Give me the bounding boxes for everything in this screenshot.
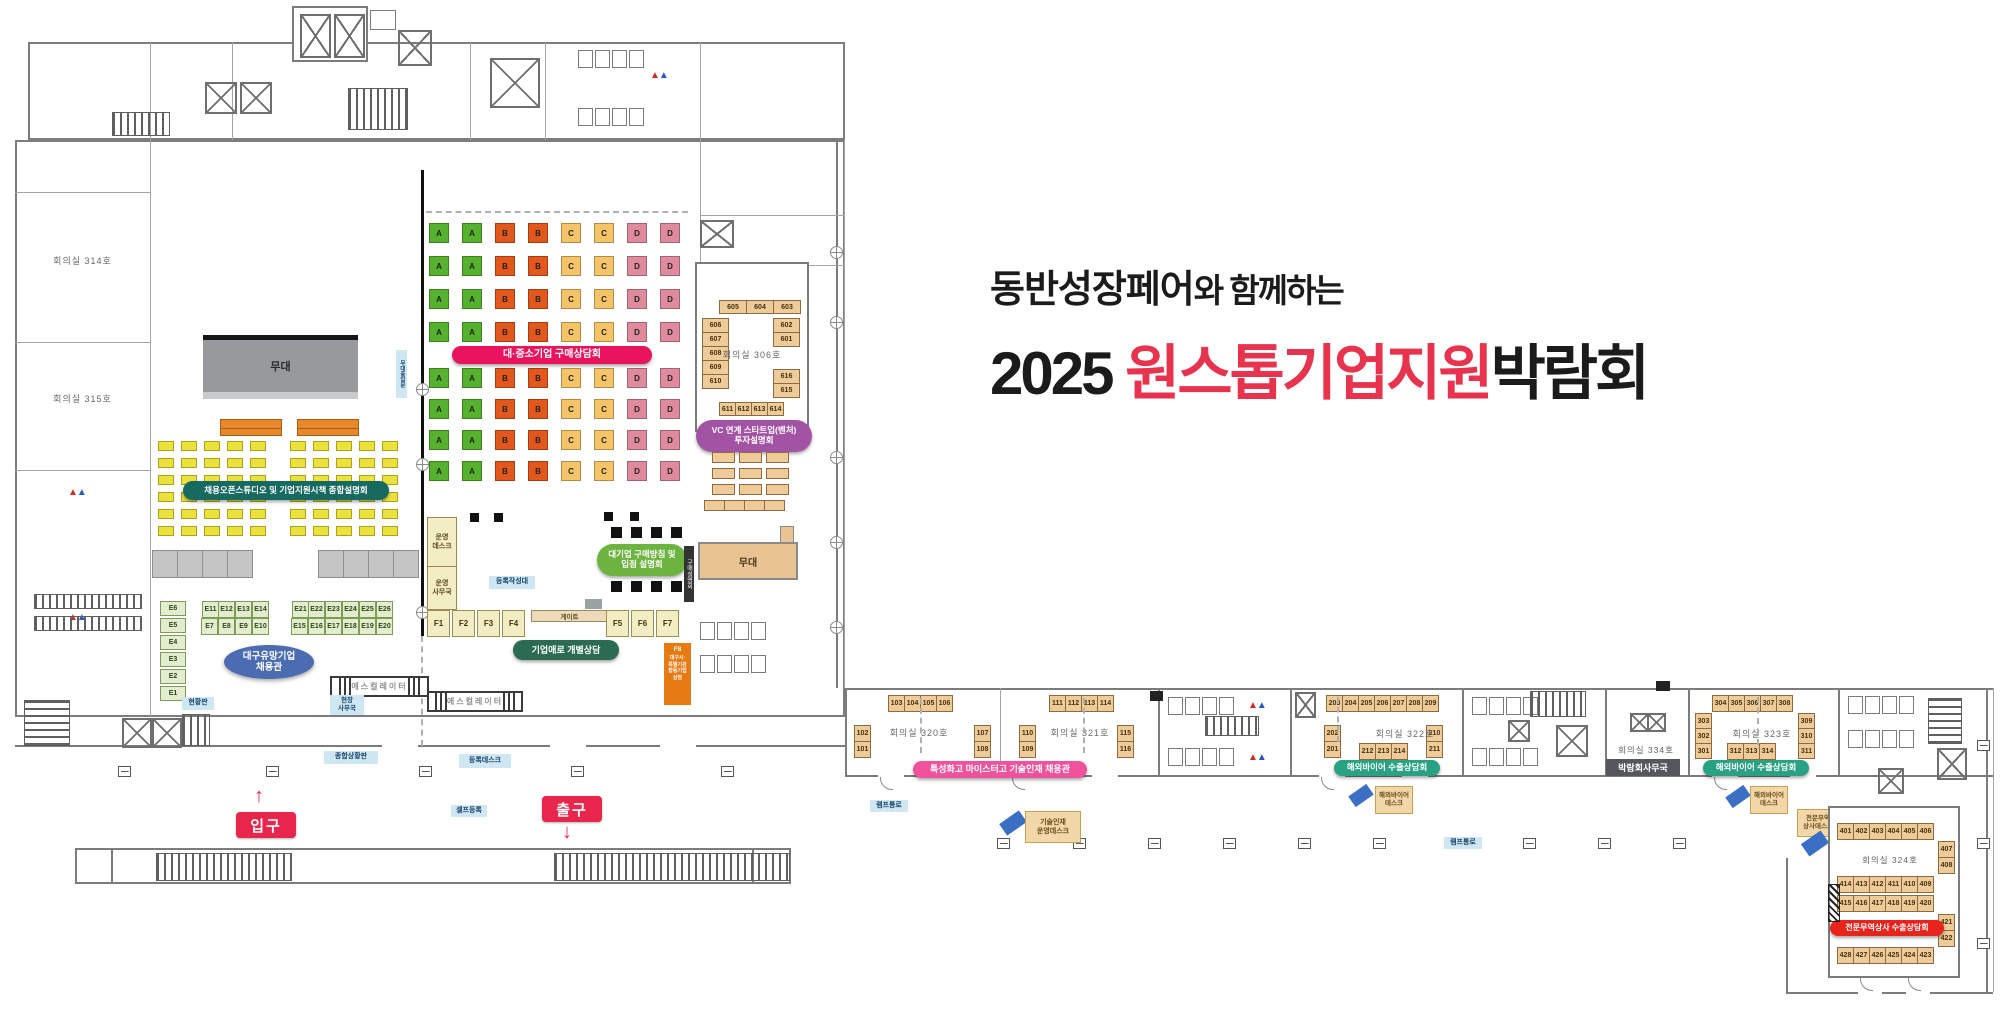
consult-booth-grid-bottom: AABBCCDDAABBCCDDAABBCCDDAABBCCDD <box>429 368 680 481</box>
toilet-fixtures <box>34 594 142 609</box>
elevator-icon <box>1878 768 1904 794</box>
table <box>766 452 789 463</box>
audience-seat <box>359 458 375 468</box>
toilet-stall <box>1882 696 1897 714</box>
chair <box>631 527 642 538</box>
security-box <box>585 599 602 609</box>
toilet-stall <box>578 50 593 68</box>
table <box>712 468 735 479</box>
table <box>712 452 735 463</box>
booth-A: A <box>429 256 449 276</box>
ops-office-label: 운영 사무국 <box>427 566 457 610</box>
wall <box>545 42 546 140</box>
booth-shell <box>202 550 228 578</box>
wall <box>700 42 701 140</box>
booth: 106 <box>936 695 953 712</box>
escalator: 에스컬레이터 <box>330 676 429 697</box>
toilet-stall <box>612 50 627 68</box>
toilet-stall <box>1865 696 1880 714</box>
biz-consult-pill: 기업애로 개별상담 <box>513 640 619 660</box>
booth-A: A <box>429 223 449 243</box>
booth: 416 <box>1853 895 1870 912</box>
toilet-stall <box>612 108 627 126</box>
room-321-label: 회의실 321호 <box>1025 726 1135 738</box>
wall <box>150 140 151 717</box>
booth: 604 <box>746 300 774 314</box>
room-divider-dashed <box>1083 698 1085 753</box>
wall <box>1786 858 1788 992</box>
booth-A: A <box>429 289 449 309</box>
toilet-stall <box>1168 748 1183 766</box>
booth: 408 <box>1938 857 1955 874</box>
booth: 606 <box>702 318 729 333</box>
booth-D: D <box>627 430 647 450</box>
audience-seat <box>382 526 398 536</box>
booth-shell <box>177 550 203 578</box>
door-gap <box>382 743 418 749</box>
wall <box>845 688 847 775</box>
booth: 205 <box>1358 695 1375 712</box>
ramp-passage-label: 램프통로 <box>870 800 908 812</box>
f-booths-left: F1F2F3F4 <box>427 610 525 637</box>
toilet-stall <box>1185 697 1200 715</box>
booth-D: D <box>660 322 680 342</box>
chair-row <box>611 581 682 592</box>
booth: F1 <box>427 610 450 637</box>
booth: E22 <box>308 601 325 618</box>
booth: E25 <box>359 601 376 618</box>
booth: E7 <box>201 618 218 635</box>
booth: 311 <box>1798 743 1815 759</box>
self-registration-label: 셀프등록 <box>451 805 487 817</box>
booth-B: B <box>495 368 515 388</box>
desk-icon <box>1348 784 1373 807</box>
booth-C: C <box>594 322 614 342</box>
e-booth-block1: E11E12E13E14E7E8E9E10 <box>202 601 270 635</box>
hall-partition-wall <box>421 170 424 636</box>
toilet-stall <box>578 108 593 126</box>
ops-desk-column: 운영 데스크 운영 사무국 <box>427 517 457 610</box>
booth-B: B <box>528 368 548 388</box>
audience-seat <box>290 526 306 536</box>
stage-step <box>780 526 794 543</box>
booth-B: B <box>528 461 548 481</box>
title-highlight: 원스톱기업지원 <box>1125 340 1490 407</box>
booth: E15 <box>291 618 308 635</box>
stairs-icon <box>112 112 170 136</box>
board-label: 현황판 <box>182 697 214 710</box>
booth: 413 <box>1853 876 1870 893</box>
audience-seat <box>227 441 243 451</box>
booth-A: A <box>429 368 449 388</box>
booth-A: A <box>429 430 449 450</box>
booth-B: B <box>495 256 515 276</box>
stage: 무대 <box>203 335 358 399</box>
booth: E9 <box>235 618 252 635</box>
stage: 무대 <box>698 542 798 580</box>
booth: E13 <box>235 601 252 618</box>
booth-B: B <box>528 289 548 309</box>
toilet-stall <box>1899 696 1914 714</box>
chair <box>604 512 613 521</box>
canopy-end <box>75 848 113 884</box>
wall <box>1462 688 1464 775</box>
booth-D: D <box>627 256 647 276</box>
desk-icon <box>999 810 1027 835</box>
booth: 314 <box>1759 743 1776 760</box>
stage-door-label: 무대출입문 <box>396 350 407 398</box>
desk-icon <box>1725 785 1750 808</box>
booth: E17 <box>325 618 342 635</box>
booth: E20 <box>376 618 393 635</box>
audience-seat <box>382 509 398 519</box>
booth: 613 <box>751 402 768 416</box>
booth: 428 <box>1837 947 1854 964</box>
toilet-stall <box>595 108 610 126</box>
chair <box>651 527 662 538</box>
booth: 605 <box>719 300 747 314</box>
elevator-icon <box>300 14 331 58</box>
audience-seat <box>204 509 220 519</box>
door-arc <box>880 777 893 790</box>
toilet-stall <box>1523 748 1538 766</box>
column-marker <box>1598 838 1611 849</box>
wall <box>15 342 150 343</box>
room322-top-booths: 203204205206207208209 <box>1326 695 1439 712</box>
buyer-export-pill: 해외바이어 수출상담회 <box>1334 760 1440 776</box>
booth-shell <box>343 550 369 578</box>
wall <box>1290 688 1292 775</box>
booth-shell <box>393 550 419 578</box>
booth: 403 <box>1869 823 1886 840</box>
table <box>739 468 762 479</box>
booth: 615 <box>773 383 800 398</box>
booth-D: D <box>660 461 680 481</box>
elevator-icon <box>240 82 272 114</box>
booth: F3 <box>477 610 500 637</box>
booth: 427 <box>1853 947 1870 964</box>
booth: 304 <box>1712 695 1729 712</box>
booth-C: C <box>594 368 614 388</box>
booth-B: B <box>528 256 548 276</box>
room324-row2-booths: 414413412411410409 <box>1837 876 1934 893</box>
elevator-icon <box>1508 720 1530 742</box>
toilet-stall <box>1489 748 1504 766</box>
booth: 104 <box>904 695 921 712</box>
booth-shell <box>227 550 253 578</box>
stairs-icon <box>348 88 408 130</box>
chair-row <box>611 527 682 538</box>
column-marker <box>419 766 432 777</box>
toilet-stall <box>734 622 749 640</box>
toilet-stalls <box>578 108 644 126</box>
wall <box>1688 688 1690 775</box>
status-board-label: 종합상황판 <box>324 751 378 764</box>
column-marker <box>1673 838 1686 849</box>
toilet-stall <box>1202 697 1217 715</box>
toilet-stall <box>700 655 715 673</box>
toilet-stall <box>1219 697 1234 715</box>
column-marker <box>1523 838 1536 849</box>
toilet-stall <box>1506 697 1521 715</box>
outer-wall <box>1786 992 1993 994</box>
booth: 312 <box>1727 743 1744 760</box>
room-314-label: 회의실 314호 <box>30 254 135 266</box>
toilet-stall <box>700 622 715 640</box>
audience-seat <box>158 509 174 519</box>
audience-seat <box>382 441 398 451</box>
booth-A: A <box>462 223 482 243</box>
elevator-icon <box>152 718 182 748</box>
audience-seat <box>313 458 329 468</box>
audience-seat <box>250 458 266 468</box>
chair <box>651 581 662 592</box>
chair <box>671 581 682 592</box>
room-320-label: 회의실 320호 <box>864 726 974 738</box>
service-room <box>370 10 396 30</box>
booth-A: A <box>462 368 482 388</box>
booth-C: C <box>594 430 614 450</box>
booth: 212 <box>1359 743 1376 760</box>
booth-C: C <box>561 322 581 342</box>
tech-talent-pill: 특성화고 마이스터고 기술인재 채용관 <box>913 761 1087 778</box>
elevator-icon <box>122 718 152 748</box>
title-line1: 동반성장페어와 함께하는 <box>990 258 1647 313</box>
audience-seat <box>250 509 266 519</box>
toilet-stall <box>629 108 644 126</box>
entrance-arrow-icon: ↑ <box>254 786 264 806</box>
booth: 404 <box>1885 823 1902 840</box>
audience-seat <box>250 441 266 451</box>
booth-C: C <box>561 399 581 419</box>
booth: 602 <box>773 318 800 333</box>
room-334-label: 회의실 334호 <box>1602 744 1690 756</box>
audience-seat <box>290 509 306 519</box>
table <box>739 484 762 495</box>
room323-bottom-booths: 312313314 <box>1727 743 1776 760</box>
escalator-icon <box>156 853 292 881</box>
audience-seat <box>313 526 329 536</box>
room-306-label: 회의실 306호 <box>712 348 792 360</box>
booth-C: C <box>561 256 581 276</box>
booth-A: A <box>429 322 449 342</box>
audience-seat <box>290 458 306 468</box>
stairs-icon <box>1928 698 1962 744</box>
booth: 426 <box>1869 947 1886 964</box>
audience-seat <box>227 458 243 468</box>
open-studio-pill: 채용오픈스튜디오 및 기업지원시책 종합설명회 <box>183 481 389 500</box>
booth-D: D <box>660 289 680 309</box>
room-divider-dashed <box>1337 697 1339 742</box>
audience-seat <box>158 526 174 536</box>
audience-seat <box>204 526 220 536</box>
door-gap <box>550 743 586 749</box>
toilet-stall <box>1882 730 1897 748</box>
booth: E11 <box>202 601 219 618</box>
toilet-stall <box>1472 697 1487 715</box>
registration-table-label: 등록작성대 <box>489 576 535 589</box>
booth: 301 <box>1695 743 1712 759</box>
wall <box>15 470 150 471</box>
registration-desk-label: 등록데스크 <box>459 754 511 768</box>
booth-D: D <box>627 223 647 243</box>
hall-boundary-dashed <box>426 211 688 213</box>
east-wall <box>836 140 838 688</box>
toilet-stalls <box>1472 697 1538 715</box>
audience-seat <box>359 526 375 536</box>
column-marker <box>266 766 279 777</box>
table <box>712 484 735 495</box>
buyer-export-pill: 해외바이어 수출상담회 <box>1703 760 1809 776</box>
booth-B: B <box>528 430 548 450</box>
booth-C: C <box>561 223 581 243</box>
audience-seat <box>250 526 266 536</box>
audience-seat <box>313 441 329 451</box>
audience-seat <box>158 441 174 451</box>
column-marker <box>1298 838 1311 849</box>
head-table <box>220 419 282 436</box>
chair <box>470 513 479 522</box>
table <box>764 500 785 511</box>
booth-A: A <box>462 399 482 419</box>
vc-table-bar <box>704 500 785 511</box>
audience-seat <box>227 509 243 519</box>
elevator-icon <box>700 220 734 248</box>
booth-D: D <box>627 368 647 388</box>
room306-right-top-booths: 602601 <box>773 318 800 347</box>
booth-D: D <box>627 461 647 481</box>
audience-seat <box>359 509 375 519</box>
booth: 313 <box>1743 743 1760 760</box>
booth: 616 <box>773 369 800 384</box>
toilet-stall <box>1865 730 1880 748</box>
e-booth-column: E6E5E4E3E2E1 <box>160 601 186 701</box>
room324-row4-booths: 428427426425424423 <box>1837 947 1934 964</box>
booth: 419 <box>1901 895 1918 912</box>
toilet-icon: ▲▲ <box>650 70 668 81</box>
chair <box>611 527 622 538</box>
booth-C: C <box>594 256 614 276</box>
booth: E10 <box>252 618 269 635</box>
booth: 305 <box>1728 695 1745 712</box>
booth: 417 <box>1869 895 1886 912</box>
toilet-stall <box>751 655 766 673</box>
booth: 214 <box>1391 743 1408 760</box>
door-arc <box>1012 777 1025 790</box>
booth-A: A <box>429 461 449 481</box>
ramp-passage-label: 램프통로 <box>1444 837 1482 849</box>
booth-shell <box>368 550 394 578</box>
event-title: 동반성장페어와 함께하는 2025 원스톱기업지원박람회 <box>990 258 1647 412</box>
wall <box>700 215 845 216</box>
booth: 405 <box>1901 823 1918 840</box>
booth: 425 <box>1885 947 1902 964</box>
daegu-jobs-ellipse: 대구유망기업 채용관 <box>224 645 314 679</box>
table <box>744 500 765 511</box>
booth: F2 <box>452 610 475 637</box>
booth-B: B <box>495 322 515 342</box>
booth: 207 <box>1390 695 1407 712</box>
toilet-stalls <box>1168 748 1234 766</box>
booth-D: D <box>660 223 680 243</box>
booth: E14 <box>252 601 269 618</box>
toilet-fixtures <box>34 616 142 631</box>
exit-sign: 출구 <box>542 796 602 822</box>
booth-B: B <box>495 461 515 481</box>
chair <box>671 527 682 538</box>
booth: 603 <box>773 300 801 314</box>
booth: 116 <box>1117 741 1134 758</box>
booth: E4 <box>160 635 186 650</box>
ops-desk-label: 운영 데스크 <box>427 517 457 567</box>
booth: 204 <box>1342 695 1359 712</box>
booth-C: C <box>561 430 581 450</box>
booth: 307 <box>1760 695 1777 712</box>
table <box>739 452 762 463</box>
toilet-stall <box>1848 730 1863 748</box>
toilet-stall <box>717 655 732 673</box>
booth: E21 <box>292 601 309 618</box>
chair <box>494 513 503 522</box>
chair <box>611 581 622 592</box>
booth: E26 <box>376 601 393 618</box>
wall <box>470 42 471 140</box>
booth-A: A <box>462 430 482 450</box>
f8-booth: F8 대구시· 특별기관 합동기업 상담 <box>664 643 691 705</box>
column-node <box>416 458 429 471</box>
booth: 201 <box>1324 741 1341 758</box>
booth: 109 <box>1019 741 1036 758</box>
booth: 303 <box>1695 713 1712 729</box>
column-node <box>830 621 843 634</box>
chair <box>630 512 639 521</box>
escalator-icon <box>554 853 790 881</box>
column-node <box>830 536 843 549</box>
room-divider-dashed <box>1757 697 1759 745</box>
column-marker <box>571 766 584 777</box>
room322-bottom-booths: 212213214 <box>1359 743 1408 760</box>
audience-seat <box>158 492 174 502</box>
booth: 209 <box>1422 695 1439 712</box>
audience-seat <box>336 509 352 519</box>
audience-seat <box>336 441 352 451</box>
f-booths-right: F5F6F7 <box>606 610 679 637</box>
booth: 401 <box>1837 823 1854 840</box>
booth-D: D <box>660 399 680 419</box>
room-323-label: 회의실 323호 <box>1712 727 1812 739</box>
booth: 206 <box>1374 695 1391 712</box>
booth: 611 <box>719 402 736 416</box>
audience-seat <box>181 509 197 519</box>
toilet-stall <box>1899 730 1914 748</box>
toilet-stall <box>1185 748 1200 766</box>
booth: E3 <box>160 652 186 667</box>
booth: 402 <box>1853 823 1870 840</box>
tech-ops-desk-label: 기술인재 운영데스크 <box>1025 811 1081 843</box>
column-node <box>416 383 429 396</box>
elevator-icon <box>398 30 432 66</box>
stairs-icon <box>24 700 70 746</box>
booth: E8 <box>218 618 235 635</box>
f8-id: F8 <box>664 646 691 653</box>
toilet-stalls <box>1848 730 1914 748</box>
stairs-icon <box>1530 691 1586 717</box>
audience-seat <box>382 458 398 468</box>
booth: F4 <box>502 610 525 637</box>
buyer-desk-label: 해외바이어 데스크 <box>1375 786 1413 814</box>
column-marker <box>1223 838 1236 849</box>
elevator-icon <box>205 82 237 114</box>
